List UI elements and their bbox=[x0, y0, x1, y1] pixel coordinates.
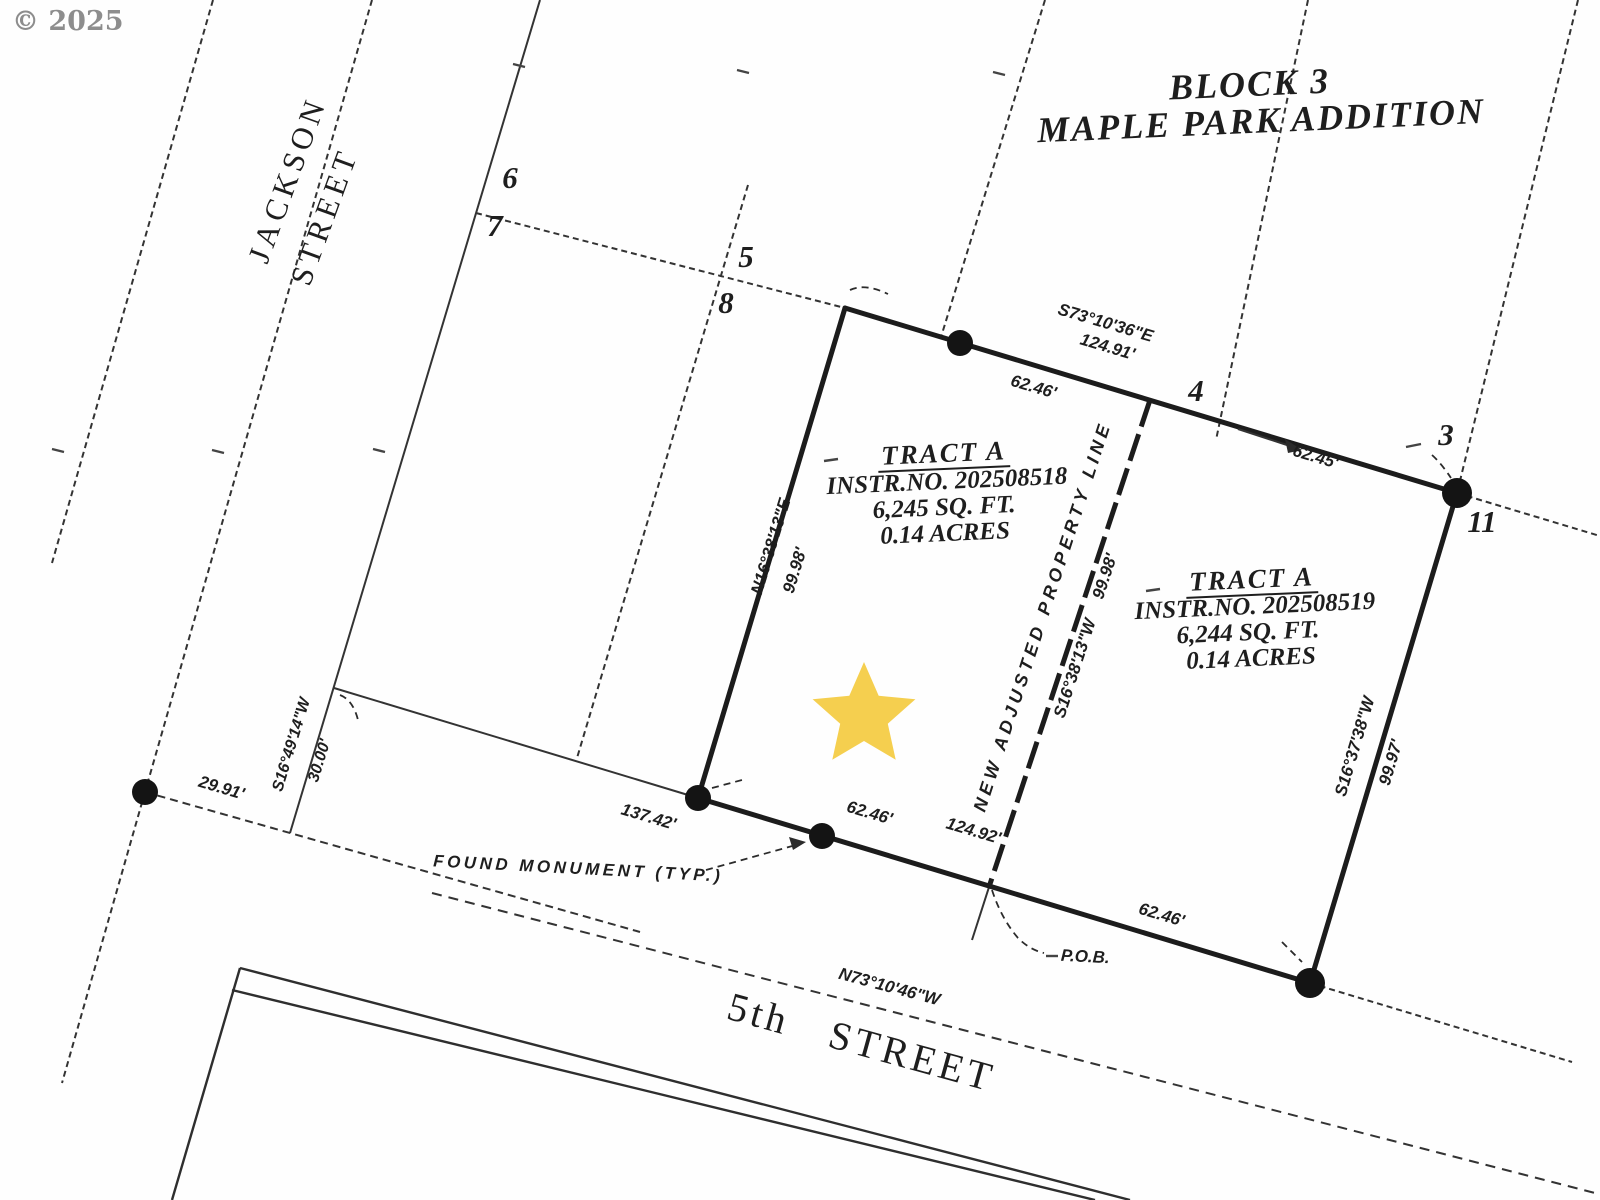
monument-dot bbox=[947, 330, 973, 356]
lot-5-4-line bbox=[941, 0, 1045, 337]
jackson-street-east-line-lower bbox=[62, 792, 145, 1083]
lot-number-5: 5 bbox=[738, 239, 754, 274]
lot-number-7: 7 bbox=[487, 208, 504, 243]
lot3-dash bbox=[1406, 444, 1421, 447]
south-total-dist-label: 124.92' bbox=[944, 814, 1004, 848]
lot-number-6: 6 bbox=[502, 160, 518, 195]
star-marker bbox=[813, 662, 916, 760]
south-boundary-extension bbox=[1310, 983, 1572, 1062]
side-dist-label: 30.00' bbox=[305, 736, 334, 784]
tract-right-acres: 0.14 ACRES bbox=[1186, 642, 1317, 675]
fifth-street-label: 5th STREET bbox=[723, 983, 1001, 1100]
row-dist-label: 29.91' bbox=[196, 772, 248, 804]
east-boundary bbox=[1310, 493, 1457, 983]
south-block-west-line bbox=[172, 968, 240, 1200]
north-left-dist-label: 62.46' bbox=[1009, 371, 1060, 403]
old-south-lot-line bbox=[334, 688, 698, 798]
tract-left-label: TRACT A INSTR.NO. 202508518 6,245 SQ. FT… bbox=[824, 433, 1071, 552]
jackson-street-west-line bbox=[52, 0, 213, 563]
south-right-dist-label: 62.46' bbox=[1137, 899, 1188, 931]
south-left-dist-label: 137.42' bbox=[619, 800, 679, 834]
lot-6-7-line bbox=[476, 213, 845, 308]
fifth-street-bearing-label: N73°10'46"W bbox=[837, 964, 944, 1010]
lot-number-4: 4 bbox=[1187, 373, 1204, 408]
lot-3-east-line bbox=[1457, 0, 1578, 493]
lot-7-8-line bbox=[577, 185, 748, 758]
plat-map: © 2025 BLOCK 3 MAPLE PARK ADDITION JACKS… bbox=[0, 0, 1600, 1200]
tract-right-label: TRACT A INSTR.NO. 202508519 6,244 SQ. FT… bbox=[1132, 559, 1379, 677]
tick bbox=[993, 72, 1005, 75]
lot-number-3: 3 bbox=[1437, 417, 1454, 452]
monument-dot bbox=[809, 823, 835, 849]
block-heading: BLOCK 3 MAPLE PARK ADDITION bbox=[1034, 54, 1486, 151]
nw-corner-hook bbox=[850, 287, 888, 294]
found-monument-label: FOUND MONUMENT (TYP.) bbox=[433, 851, 724, 885]
north-right-dist-label: 62.45' bbox=[1291, 441, 1342, 473]
fifth-street-south-row-line-1 bbox=[240, 968, 1130, 1200]
tick-marks bbox=[52, 64, 1005, 453]
south-seg-dist-label: 62.46' bbox=[845, 797, 896, 829]
fifth-street-south-row-line-2 bbox=[232, 990, 1095, 1200]
monument-dot bbox=[1295, 968, 1325, 998]
south-boundary bbox=[698, 798, 1310, 983]
monument-dot bbox=[132, 779, 158, 805]
tick bbox=[513, 64, 525, 67]
middle-line-south-extension bbox=[972, 884, 990, 940]
fifth-street-centerline bbox=[432, 893, 1595, 1193]
block-west-lot-line bbox=[290, 0, 540, 833]
west-dist-label: 99.98' bbox=[779, 544, 811, 595]
tick bbox=[737, 70, 749, 73]
lot-number-8: 8 bbox=[718, 285, 734, 320]
thirty-foot-leader bbox=[340, 695, 358, 720]
se-corner-tick bbox=[1282, 942, 1302, 962]
tick bbox=[52, 449, 64, 452]
sw-corner-tick bbox=[712, 780, 742, 788]
lot3-leader bbox=[1432, 455, 1451, 478]
tract-a-right-dash bbox=[1146, 589, 1160, 591]
copyright-watermark: © 2025 bbox=[12, 6, 124, 37]
tract-a-left-dash bbox=[824, 459, 838, 461]
tick bbox=[373, 449, 385, 452]
lot-number-11: 11 bbox=[1467, 504, 1496, 539]
monument-dot bbox=[685, 785, 711, 811]
found-monument-arrowhead bbox=[789, 837, 806, 850]
dim-arrow-tail bbox=[1238, 429, 1290, 446]
tick bbox=[212, 450, 224, 453]
pob-label: P.O.B. bbox=[1060, 946, 1110, 968]
tract-left-acres: 0.14 ACRES bbox=[880, 517, 1011, 550]
block-heading-line2: MAPLE PARK ADDITION bbox=[1035, 91, 1485, 151]
